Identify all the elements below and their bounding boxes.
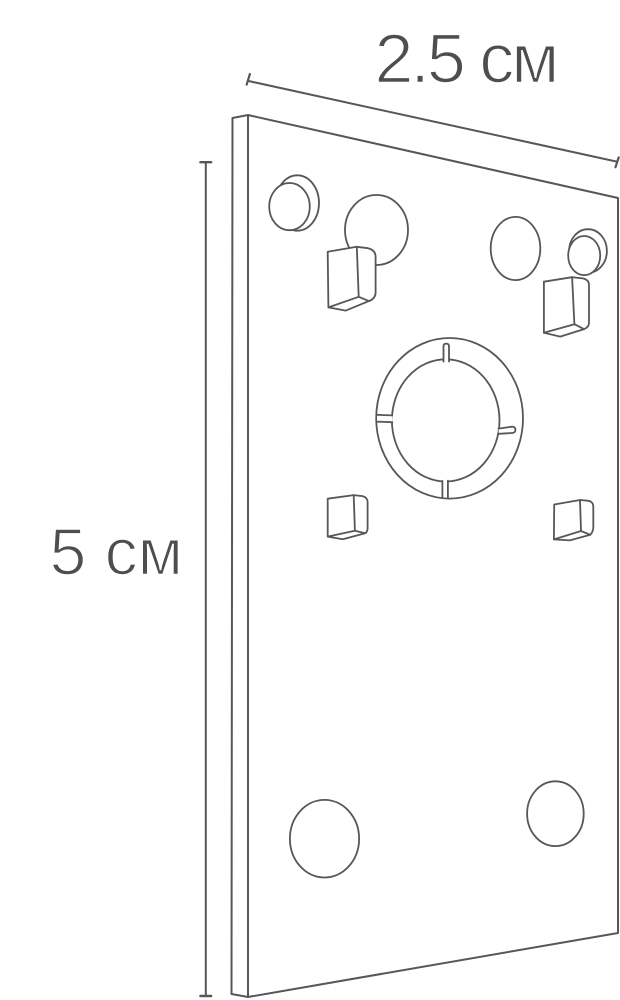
- svg-text:5 см: 5 см: [50, 515, 183, 589]
- svg-text:2.5 см: 2.5 см: [375, 20, 557, 98]
